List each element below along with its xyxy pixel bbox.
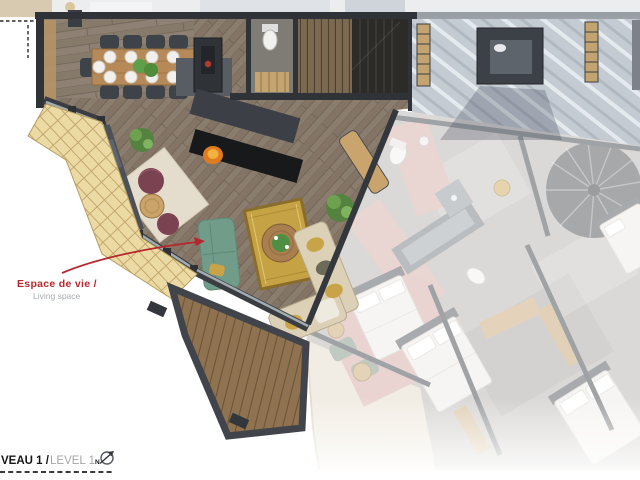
dining-bench <box>44 20 56 106</box>
north-letter: N <box>95 459 100 466</box>
living-space-label-en: Living space <box>33 291 81 301</box>
wc-shelf <box>255 72 289 92</box>
floor-plan-drawing: Espace de vie / Living space VEAU 1 / LE… <box>0 0 640 480</box>
roof-ladder <box>417 24 430 86</box>
north-arrow-icon: N <box>95 451 114 466</box>
cooktop-burner <box>205 61 211 67</box>
roof-ladder <box>585 22 598 82</box>
toilet <box>263 30 277 50</box>
wall-top-faded <box>417 12 640 19</box>
living-space-label-fr: Espace de vie / <box>17 278 97 290</box>
level-label-light: LEVEL 1 <box>50 455 95 467</box>
pouf-maroon <box>157 213 179 235</box>
level-label-bold: VEAU 1 / <box>1 455 50 467</box>
main-staircase <box>298 19 408 95</box>
wall-top <box>35 12 417 19</box>
wall-left <box>36 12 44 108</box>
boundary-dashes <box>0 21 35 58</box>
deck-cleat <box>147 301 168 317</box>
footer-level-label: VEAU 1 / LEVEL 1 N <box>0 451 114 472</box>
cooktop <box>201 46 215 74</box>
floor-plan-page: Espace de vie / Living space VEAU 1 / LE… <box>0 0 640 480</box>
centerpiece-plant <box>144 63 158 77</box>
pouf-maroon <box>138 168 164 194</box>
wc-room <box>250 19 294 95</box>
coffee-table-round <box>140 194 164 218</box>
